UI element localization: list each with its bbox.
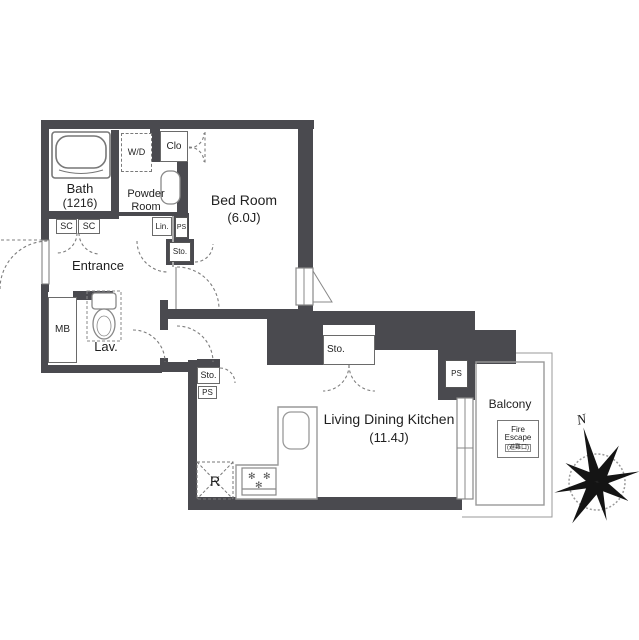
fire-escape-line2: Escape <box>505 434 532 442</box>
fixtures-and-doors-layer: N <box>0 0 639 640</box>
balcony-name: Balcony <box>477 398 543 412</box>
pipe-space-powder: PS <box>175 217 188 238</box>
pipe-space-right: PS <box>445 360 468 388</box>
storage-ldk-left: Sto. <box>197 367 220 384</box>
shoe-closet-2: SC <box>78 219 100 234</box>
closet-box: Clo <box>160 131 188 162</box>
washer-dryer-label: W/D <box>128 148 146 157</box>
shoe-closet-1-label: SC <box>60 222 73 231</box>
stove-burner-icon: ✻ <box>263 471 271 482</box>
washer-dryer-space: W/D <box>121 133 152 172</box>
balcony-label: Balcony <box>477 398 543 412</box>
fridge-letter: R <box>204 473 226 489</box>
kitchen-sink-icon <box>283 412 309 449</box>
lav-label: Lav. <box>82 340 130 355</box>
linen-label: Lin. <box>156 223 169 231</box>
bedroom-label: Bed Room (6.0J) <box>194 192 294 226</box>
front-door-leaf <box>42 240 49 284</box>
powder-line2: Room <box>116 201 176 214</box>
storage-hall-label: Sto. <box>173 248 187 256</box>
compass-north-label: N <box>574 412 588 429</box>
fire-escape-hatch: Fire Escape (避難口) <box>497 420 539 458</box>
bedroom-name: Bed Room <box>194 192 294 208</box>
fire-escape-line3: (避難口) <box>505 444 531 452</box>
ldk-label: Living Dining Kitchen (11.4J) <box>316 411 462 446</box>
bath-size: (1216) <box>48 197 112 211</box>
storage-ldk-top-label: Sto. <box>327 345 345 355</box>
pipe-space-ldk-left: PS <box>198 386 217 399</box>
ldk-name: Living Dining Kitchen <box>316 411 462 427</box>
meter-box-label: MB <box>55 325 70 335</box>
pipe-space-powder-label: PS <box>177 224 186 231</box>
closet-label: Clo <box>166 142 181 152</box>
shoe-closet-2-label: SC <box>83 222 96 231</box>
powder-line1: Powder <box>116 188 176 201</box>
ldk-size: (11.4J) <box>316 431 462 446</box>
storage-hall: Sto. <box>169 242 191 262</box>
stove-burner-icon: ✻ <box>255 480 263 491</box>
floor-plan: N W/D Clo SC SC Lin. PS Sto. MB Sto. PS … <box>0 0 639 640</box>
fridge-label: R <box>204 473 226 489</box>
bedroom-window <box>296 268 332 305</box>
entrance-name: Entrance <box>52 259 144 274</box>
linen-box: Lin. <box>152 217 172 236</box>
toilet-icon <box>87 291 121 341</box>
pipe-space-right-label: PS <box>451 370 462 378</box>
storage-ldk-left-label: Sto. <box>200 371 216 380</box>
shoe-closet-1: SC <box>56 219 77 234</box>
meter-box: MB <box>48 297 77 363</box>
bathtub-icon <box>52 132 110 178</box>
pipe-space-ldk-left-label: PS <box>202 389 213 397</box>
lav-name: Lav. <box>82 340 130 355</box>
powder-room-label: Powder Room <box>116 188 176 213</box>
entrance-label: Entrance <box>52 259 144 274</box>
bath-label: Bath (1216) <box>48 182 112 211</box>
bath-name: Bath <box>48 182 112 197</box>
storage-ldk-top: Sto. <box>323 335 375 365</box>
bedroom-size: (6.0J) <box>194 211 294 226</box>
